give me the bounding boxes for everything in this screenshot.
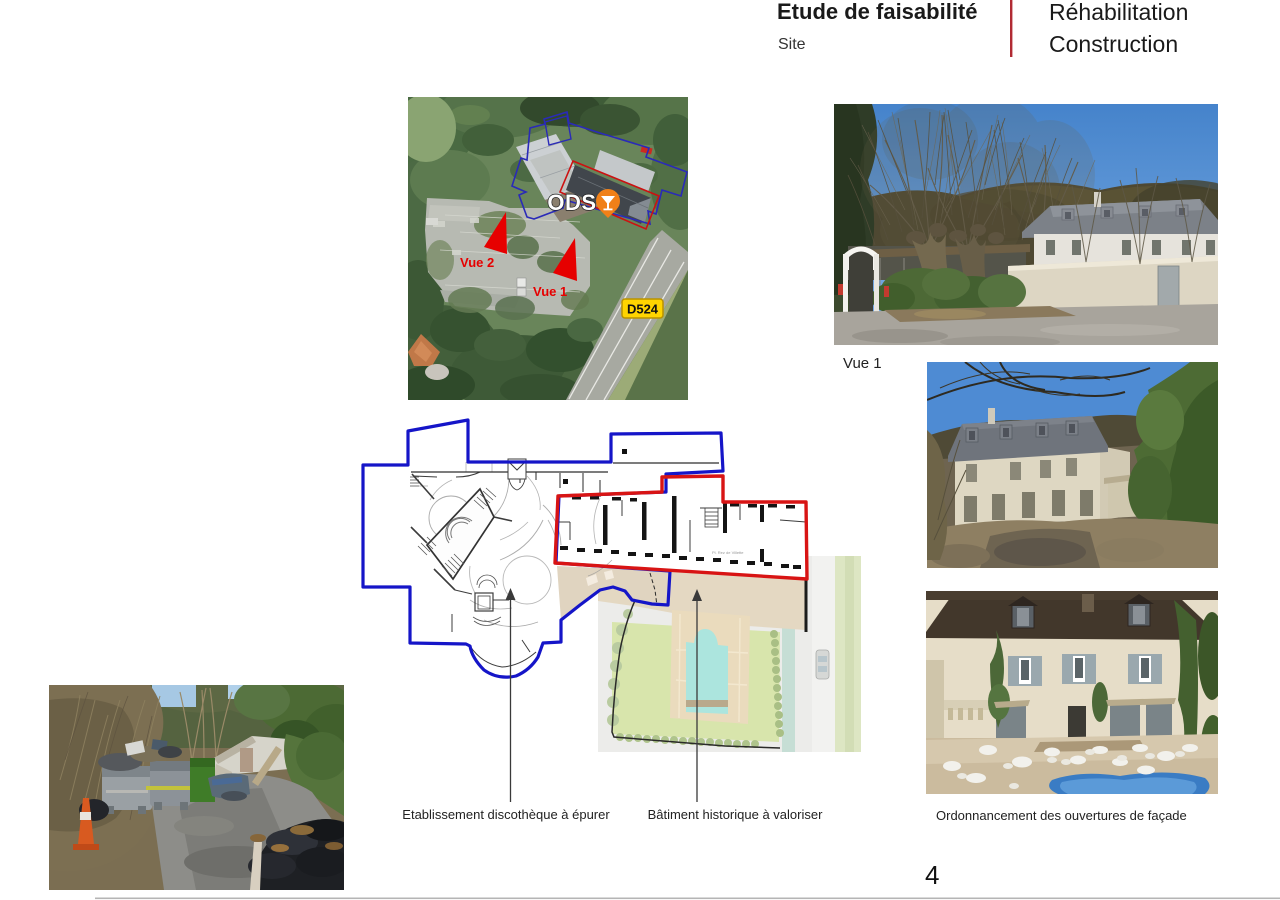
svg-text:Vue 1: Vue 1 [843,355,882,372]
svg-text:Etablissement discothèque à ép: Etablissement discothèque à épurer [402,807,610,822]
svg-text:Pl. Rez de Villette: Pl. Rez de Villette [712,550,744,555]
svg-text:4: 4 [925,860,939,890]
svg-text:Construction: Construction [1049,31,1178,57]
svg-text:Site: Site [778,36,806,53]
svg-text:Bâtiment historique à valorise: Bâtiment historique à valoriser [648,807,824,822]
svg-text:Réhabilitation: Réhabilitation [1049,0,1188,25]
svg-text:Vue 1: Vue 1 [533,284,567,299]
svg-text:Ordonnancement des ouvertures: Ordonnancement des ouvertures de façade [936,808,1187,823]
svg-text:ODS: ODS [547,190,596,215]
svg-text:Vue 2: Vue 2 [460,255,494,270]
svg-text:D524: D524 [627,302,659,317]
svg-text:Etude de faisabilité: Etude de faisabilité [777,0,978,24]
